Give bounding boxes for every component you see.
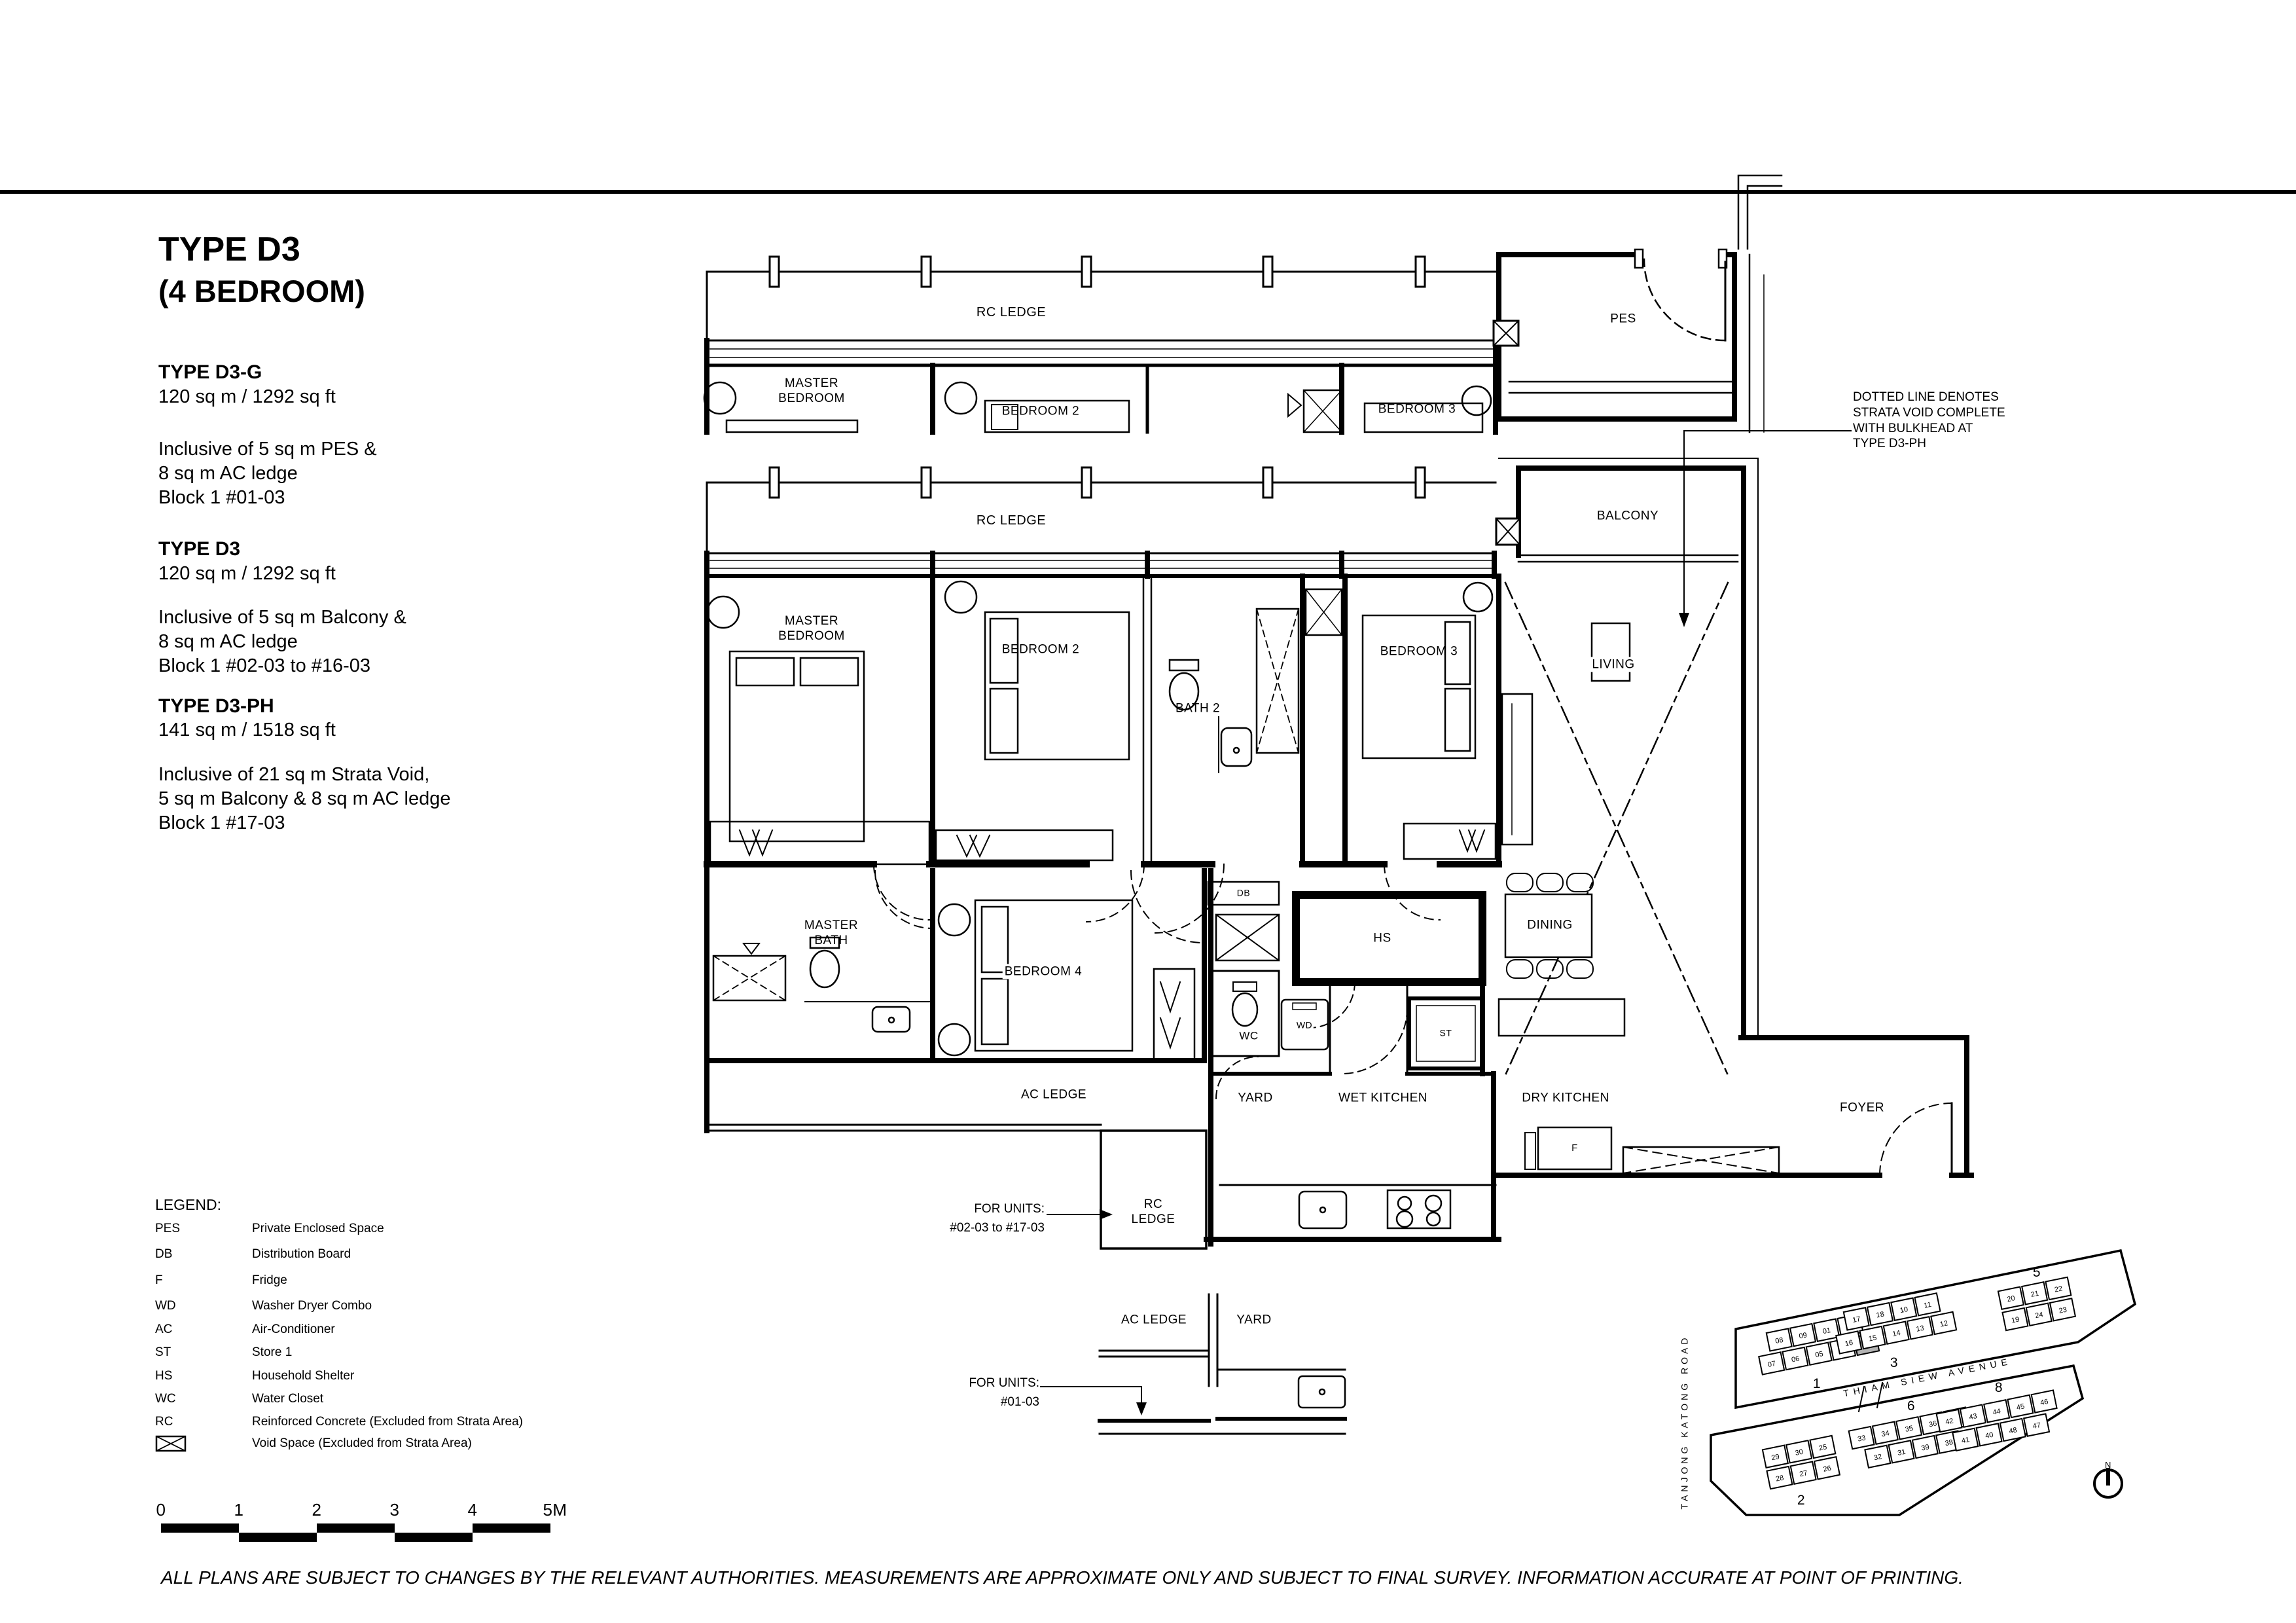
site-unit-number: 19: [2011, 1315, 2020, 1324]
legend-desc: Water Closet: [252, 1392, 323, 1406]
legend-desc: Reinforced Concrete (Excluded from Strat…: [252, 1415, 523, 1429]
strata-void-note: DOTTED LINE DENOTES STRATA VOID COMPLETE…: [1853, 390, 2005, 452]
upper-partial-plan: [704, 175, 1782, 432]
scale-tick-2: 2: [312, 1500, 322, 1521]
legend-row-hs: HSHousehold Shelter: [155, 1369, 354, 1383]
room-label-rc-ledge-upper2: RC LEDGE: [977, 304, 1046, 320]
site-unit-number: 44: [1992, 1408, 2001, 1417]
legend-desc: Private Enclosed Space: [252, 1222, 384, 1236]
type-d3g-name: TYPE D3-G: [158, 360, 262, 385]
site-unit-number: 36: [1928, 1419, 1937, 1429]
type-d3g-area: 120 sq m / 1292 sq ft: [158, 385, 336, 409]
scale-tick-5: 5M: [543, 1500, 567, 1521]
legend-row-void: Void Space (Excluded from Strata Area): [155, 1435, 472, 1452]
site-unit-number: 29: [1770, 1453, 1780, 1462]
site-cluster-number-1: 1: [1813, 1376, 1821, 1393]
legend-row-db: DBDistribution Board: [155, 1247, 351, 1262]
type-d3-area: 120 sq m / 1292 sq ft: [158, 562, 336, 586]
site-unit-number: 05: [1814, 1350, 1823, 1359]
site-unit-number: 47: [2032, 1421, 2041, 1431]
site-unit-number: 43: [1968, 1412, 1977, 1421]
scale-segment: [473, 1523, 550, 1533]
site-unit-number: 30: [1795, 1448, 1804, 1457]
site-cluster-2: 293025282726: [1763, 1436, 1840, 1489]
site-unit-number: 10: [1899, 1305, 1909, 1315]
page-title: TYPE D3: [158, 228, 300, 272]
legend-row-pes: PESPrivate Enclosed Space: [155, 1222, 384, 1236]
site-unit-number: 28: [1775, 1474, 1784, 1483]
scale-segment: [239, 1533, 317, 1542]
type-d3ph-name: TYPE D3-PH: [158, 694, 274, 719]
door-arcs: [874, 864, 1440, 943]
legend-row-rc: RCReinforced Concrete (Excluded from Str…: [155, 1415, 523, 1429]
legend-abbr: WC: [155, 1392, 252, 1406]
site-unit-number: 27: [1799, 1469, 1808, 1478]
site-unit-number: 17: [1852, 1315, 1861, 1324]
site-unit-number: 09: [1799, 1331, 1808, 1340]
room-label-rc-ledge-box: RC LEDGE: [1132, 1197, 1175, 1227]
scale-segment: [395, 1533, 473, 1542]
site-unit-number: 16: [1844, 1339, 1854, 1348]
site-cluster-number-5: 5: [2033, 1264, 2041, 1281]
legend-abbr: RC: [155, 1415, 252, 1429]
legend-desc: Air-Conditioner: [252, 1322, 335, 1337]
room-label-bedroom3-upper: BEDROOM 3: [1378, 401, 1456, 416]
room-label-bedroom4: BEDROOM 4: [1003, 964, 1085, 979]
label-wc: WC: [1238, 1030, 1259, 1044]
room-label-rc-ledge-main: RC LEDGE: [977, 513, 1046, 528]
site-unit-number: 34: [1880, 1429, 1890, 1438]
legend-desc: Washer Dryer Combo: [252, 1299, 372, 1313]
type-d3g-details: Inclusive of 5 sq m PES & 8 sq m AC ledg…: [158, 437, 377, 510]
room-label-bedroom3-main: BEDROOM 3: [1380, 644, 1458, 659]
label-st: ST: [1439, 1027, 1454, 1038]
site-unit-number: 23: [2058, 1306, 2068, 1315]
room-label-ac-ledge-main: AC LEDGE: [1021, 1087, 1086, 1102]
site-unit-number: 45: [2016, 1402, 2025, 1412]
site-cluster-5: 202122192423: [1998, 1277, 2075, 1330]
site-unit-number: 11: [1924, 1301, 1933, 1310]
label-wd: WD: [1295, 1019, 1314, 1030]
site-unit-number: 39: [1920, 1443, 1929, 1452]
label-db: DB: [1237, 887, 1250, 898]
room-label-bedroom2-upper: BEDROOM 2: [1002, 403, 1080, 418]
scale-segment: [161, 1523, 239, 1533]
legend-abbr: F: [155, 1273, 252, 1288]
site-unit-number: 33: [1857, 1434, 1866, 1443]
site-unit-number: 18: [1876, 1310, 1885, 1319]
legend-row-wd: WDWasher Dryer Combo: [155, 1299, 372, 1313]
legend-desc: Store 1: [252, 1345, 292, 1360]
site-unit-number: 41: [1961, 1436, 1970, 1445]
label-hs: HS: [1373, 930, 1391, 945]
label-fridge: F: [1571, 1142, 1578, 1154]
room-label-balcony: BALCONY: [1597, 508, 1659, 523]
kitchen-foyer: [1299, 1103, 1952, 1228]
page-subtitle: (4 BEDROOM): [158, 272, 365, 311]
site-unit-number: 26: [1823, 1465, 1832, 1474]
scale-tick-1: 1: [234, 1500, 244, 1521]
site-unit-number: 06: [1791, 1355, 1800, 1364]
room-label-living: LIVING: [1589, 657, 1637, 672]
site-cluster-number-2: 2: [1797, 1492, 1805, 1509]
legend-abbr: AC: [155, 1322, 252, 1337]
leader-lines: [1041, 431, 1851, 1415]
site-unit-number: 46: [2039, 1398, 2049, 1407]
site-cluster-number-8: 8: [1995, 1379, 2003, 1396]
master-bath-fixtures: [707, 871, 933, 1061]
legend-abbr: PES: [155, 1222, 252, 1236]
main-plan: [707, 458, 1971, 1249]
room-label-ac-ledge-detail: AC LEDGE: [1121, 1312, 1187, 1327]
legend-title: LEGEND:: [155, 1195, 221, 1214]
room-label-master-bedroom-main: MASTER BEDROOM: [778, 613, 845, 644]
room-label-bath2: BATH 2: [1175, 701, 1220, 716]
site-unit-number: 12: [1939, 1319, 1948, 1328]
type-d3ph-area: 141 sq m / 1518 sq ft: [158, 718, 336, 742]
type-d3-details: Inclusive of 5 sq m Balcony & 8 sq m AC …: [158, 606, 406, 678]
bedroom2-furniture: [936, 581, 1129, 860]
site-unit-number: 08: [1774, 1336, 1784, 1345]
site-unit-number: 13: [1916, 1324, 1925, 1334]
room-label-master-bath: MASTER BATH: [804, 918, 858, 948]
scale-segment: [317, 1523, 395, 1533]
legend-row-ac: ACAir-Conditioner: [155, 1322, 335, 1337]
site-unit-number: 22: [2054, 1285, 2063, 1294]
site-unit-number: 48: [2008, 1426, 2017, 1435]
services-block: [1208, 882, 1494, 1099]
bath2-fixtures: [1170, 609, 1299, 773]
room-label-foyer: FOYER: [1840, 1100, 1884, 1115]
site-unit-number: 35: [1905, 1425, 1914, 1434]
road-label-tanjong-katong: TANJONG KATONG ROAD: [1679, 1335, 1690, 1510]
legend-desc: Fridge: [252, 1273, 287, 1288]
site-unit-number: 14: [1892, 1329, 1901, 1338]
room-label-yard-detail: YARD: [1236, 1312, 1271, 1327]
type-d3-name: TYPE D3: [158, 537, 240, 562]
site-unit-number: 24: [2034, 1311, 2043, 1320]
room-label-wet-kitchen: WET KITCHEN: [1338, 1090, 1427, 1105]
callout-upper-units: FOR UNITS: #02-03 to #17-03: [950, 1199, 1045, 1238]
legend-abbr: WD: [155, 1299, 252, 1313]
bedroom3-furniture: [1363, 583, 1496, 859]
site-unit-number: 42: [1945, 1417, 1954, 1426]
scale-tick-3: 3: [390, 1500, 400, 1521]
site-unit-number: 07: [1767, 1360, 1776, 1369]
legend-abbr: HS: [155, 1369, 252, 1383]
pes-block: [1494, 175, 1782, 432]
legend-desc: Distribution Board: [252, 1247, 351, 1262]
site-cluster-8: 424344454641404847: [1937, 1390, 2062, 1453]
site-unit-number: 31: [1897, 1448, 1906, 1457]
callout-lower-units: FOR UNITS: #01-03: [969, 1374, 1039, 1412]
void-space-icon: [155, 1435, 252, 1452]
site-cluster-number-6: 6: [1907, 1398, 1915, 1415]
site-cluster-number-3: 3: [1890, 1355, 1898, 1372]
legend-row-wc: WCWater Closet: [155, 1392, 323, 1406]
room-label-bedroom2-main: BEDROOM 2: [1002, 642, 1080, 657]
site-unit-number: 01: [1822, 1326, 1831, 1336]
room-label-pes: PES: [1610, 311, 1636, 326]
site-unit-number: 25: [1818, 1443, 1827, 1452]
legend-desc: Void Space (Excluded from Strata Area): [252, 1436, 472, 1451]
site-unit-number: 21: [2030, 1290, 2039, 1299]
legend-abbr: DB: [155, 1247, 252, 1262]
legend-abbr: ST: [155, 1345, 252, 1360]
type-d3ph-details: Inclusive of 21 sq m Strata Void, 5 sq m…: [158, 763, 451, 835]
site-unit-number: 15: [1868, 1334, 1877, 1343]
site-unit-number: 32: [1873, 1453, 1882, 1462]
scale-tick-4: 4: [468, 1500, 478, 1521]
site-unit-number: 40: [1984, 1431, 1994, 1440]
floorplan-page: 0809010207060504031718101116151413122021…: [0, 0, 2296, 1623]
room-label-dining: DINING: [1525, 917, 1575, 932]
disclaimer-text: ALL PLANS ARE SUBJECT TO CHANGES BY THE …: [161, 1566, 1964, 1590]
site-unit-number: 38: [1945, 1438, 1954, 1448]
room-label-yard-main: YARD: [1238, 1090, 1272, 1105]
site-unit-number: 20: [2006, 1294, 2015, 1304]
legend-desc: Household Shelter: [252, 1369, 354, 1383]
room-label-master-bedroom-upper: MASTER BEDROOM: [778, 376, 845, 406]
north-label: N: [2105, 1460, 2111, 1470]
legend-row-f: FFridge: [155, 1273, 287, 1288]
site-cluster-3: 171810111615141312: [1832, 1290, 1957, 1353]
scale-tick-0: 0: [156, 1500, 166, 1521]
legend-row-st: STStore 1: [155, 1345, 292, 1360]
room-label-dry-kitchen: DRY KITCHEN: [1522, 1090, 1609, 1105]
